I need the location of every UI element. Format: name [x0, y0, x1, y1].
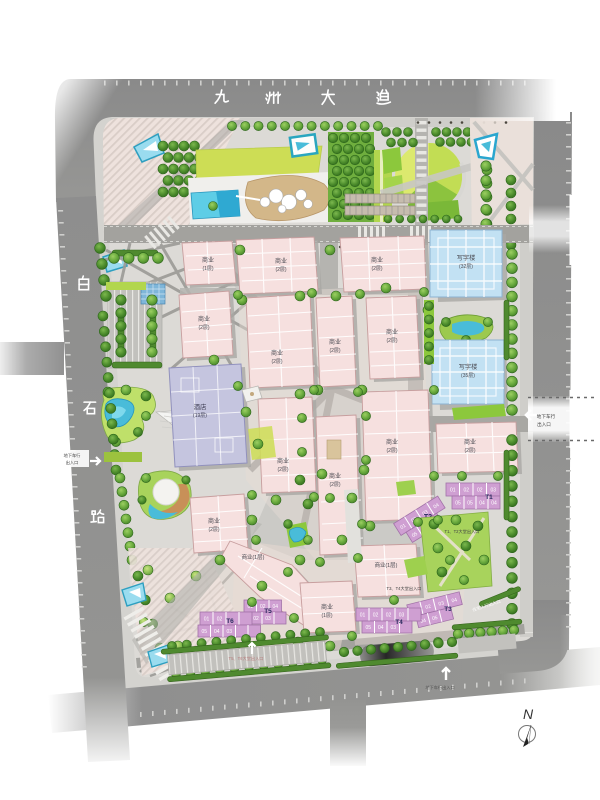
- svg-text:商业: 商业: [386, 438, 398, 446]
- svg-text:(2层): (2层): [371, 266, 382, 272]
- svg-text:(1层): (1层): [321, 613, 332, 619]
- svg-text:04: 04: [214, 629, 220, 635]
- svg-text:(1层): (1层): [202, 266, 213, 272]
- svg-text:03: 03: [490, 488, 496, 494]
- svg-text:02: 02: [253, 616, 259, 622]
- svg-text:04: 04: [479, 501, 485, 507]
- svg-text:(2层): (2层): [275, 267, 286, 273]
- svg-text:商业: 商业: [208, 517, 220, 525]
- svg-text:(2层): (2层): [271, 359, 282, 365]
- svg-text:01: 01: [360, 613, 366, 619]
- svg-text:(2层): (2层): [208, 527, 219, 533]
- svg-text:地下车行: 地下车行: [537, 413, 556, 420]
- svg-text:01: 01: [204, 617, 210, 623]
- svg-text:写字楼: 写字楼: [459, 363, 478, 371]
- svg-text:商业: 商业: [202, 256, 214, 264]
- svg-text:02: 02: [386, 613, 392, 619]
- svg-text:T3: T3: [444, 606, 452, 613]
- svg-text:(19层): (19层): [193, 413, 207, 419]
- svg-text:(2层): (2层): [329, 348, 340, 354]
- svg-text:01: 01: [450, 488, 456, 494]
- svg-text:02: 02: [217, 617, 223, 623]
- svg-text:出入口: 出入口: [537, 421, 551, 428]
- svg-text:(32层): (32层): [459, 264, 473, 270]
- svg-text:04: 04: [491, 501, 497, 507]
- svg-text:03: 03: [226, 629, 232, 635]
- svg-text:T5: T5: [264, 608, 272, 615]
- svg-text:05: 05: [467, 501, 473, 507]
- svg-text:(2层): (2层): [464, 448, 475, 454]
- svg-text:商业: 商业: [271, 349, 283, 357]
- svg-text:商业: 商业: [275, 257, 287, 265]
- svg-text:02: 02: [373, 613, 379, 619]
- svg-text:出入口: 出入口: [66, 459, 79, 466]
- svg-text:商业: 商业: [464, 438, 476, 446]
- svg-text:商业: 商业: [198, 315, 210, 323]
- svg-text:商业: 商业: [277, 457, 289, 465]
- svg-text:T4: T4: [395, 619, 403, 626]
- svg-text:商业(1层): 商业(1层): [375, 561, 398, 569]
- svg-text:04: 04: [272, 604, 278, 610]
- svg-text:05: 05: [201, 629, 207, 635]
- svg-text:商业: 商业: [329, 338, 341, 346]
- svg-text:03: 03: [399, 613, 405, 619]
- svg-text:地下车行出入口: 地下车行出入口: [425, 684, 454, 691]
- svg-text:商业(1层): 商业(1层): [242, 553, 265, 561]
- svg-text:商业: 商业: [321, 603, 333, 611]
- svg-text:N: N: [523, 706, 534, 722]
- svg-text:写字楼: 写字楼: [457, 254, 476, 262]
- svg-text:(2层): (2层): [386, 448, 397, 454]
- svg-text:(2层): (2层): [198, 325, 209, 331]
- svg-text:05: 05: [455, 501, 461, 507]
- svg-text:02: 02: [477, 488, 483, 494]
- svg-text:酒店: 酒店: [194, 402, 207, 411]
- svg-text:商业: 商业: [386, 328, 398, 336]
- svg-text:T1、T2大堂出入口: T1、T2大堂出入口: [445, 528, 480, 535]
- svg-text:T6: T6: [226, 618, 234, 625]
- svg-text:T3、T4大堂出入口: T3、T4大堂出入口: [387, 585, 422, 592]
- svg-text:(35层): (35层): [461, 373, 475, 379]
- svg-text:02: 02: [463, 488, 469, 494]
- svg-text:地下车行: 地下车行: [64, 452, 81, 459]
- svg-text:商业: 商业: [371, 256, 383, 264]
- svg-text:05: 05: [365, 625, 371, 631]
- svg-text:(2层): (2层): [386, 338, 397, 344]
- svg-text:03: 03: [265, 616, 271, 622]
- svg-text:T1: T1: [485, 494, 493, 501]
- svg-text:T5、T6大堂出入口: T5、T6大堂出入口: [229, 655, 264, 662]
- svg-text:04: 04: [378, 625, 384, 631]
